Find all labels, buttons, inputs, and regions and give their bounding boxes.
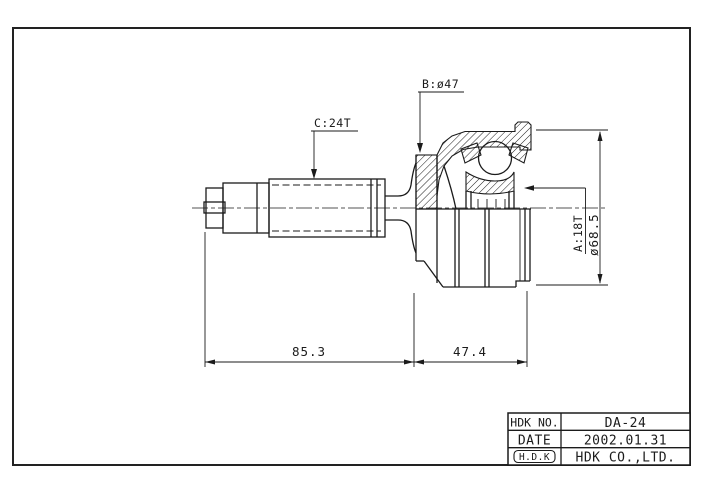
title-block-label-hdk-no: HDK NO. [510,416,558,430]
title-block-value-company: HDK CO.,LTD. [576,451,676,466]
shaft-end-groove [204,202,225,213]
arrowhead-dim1-right [404,360,414,365]
arrowhead-c [311,169,317,179]
arrowhead-dim2-right [517,360,527,365]
arrowhead-dim2-left [414,360,424,365]
housing-external [416,209,531,287]
label-a-spline: A:18T [571,215,585,252]
title-block-label-date: DATE [518,434,551,449]
flange-chamfer [424,261,443,287]
label-c-spline: C:24T [314,116,351,130]
cv-joint-drawing: C:24T B:ø47 A:18T ø68.5 85.3 47.4 [0,0,720,480]
dimension-85-3: 85.3 [292,344,326,359]
arrowhead-b [417,143,423,153]
label-outer-diameter: ø68.5 [586,213,601,256]
arrowhead-dia-top [598,131,603,141]
arrowhead-dim1-left [205,360,215,365]
open-end-step [516,281,530,287]
title-block-value-date: 2002.01.31 [584,434,667,449]
arrowhead-a [524,185,534,190]
shaft-neck-top [385,163,416,196]
bell-inner-edge [444,166,456,209]
housing-section [416,122,531,283]
inner-race-section [466,172,514,194]
shaft-neck-bottom [385,220,416,253]
label-b-diameter: B:ø47 [422,77,459,91]
dimension-47-4: 47.4 [453,344,487,359]
flange-section [416,155,437,209]
title-block-value-part-number: DA-24 [605,416,647,431]
hdk-logo: H.D.K [519,452,550,463]
arrowhead-dia-bottom [598,274,603,284]
title-block: HDK NO. DA-24 DATE 2002.01.31 H.D.K HDK … [508,413,690,466]
